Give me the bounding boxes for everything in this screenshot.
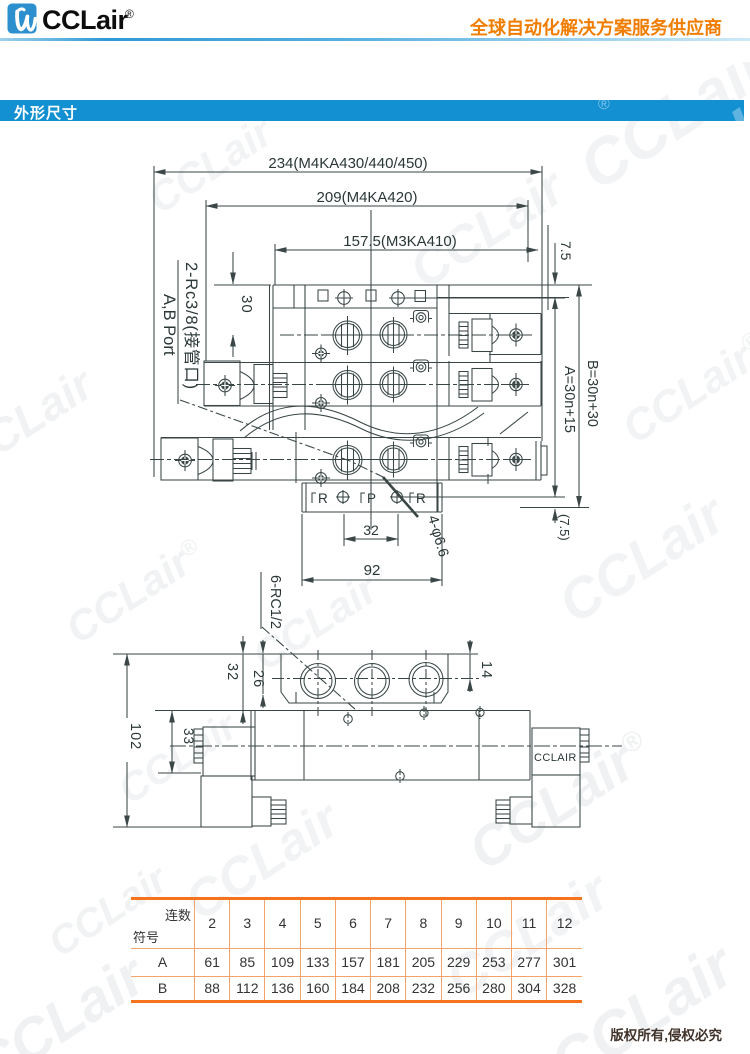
svg-text:CCLair®: CCLair® [614, 324, 750, 453]
svg-text:4-φ6.6: 4-φ6.6 [424, 514, 451, 559]
svg-text:92: 92 [364, 562, 381, 579]
svg-text:CCLair: CCLair [0, 356, 104, 483]
svg-text:26: 26 [250, 670, 266, 688]
svg-text:CCLair: CCLair [111, 703, 247, 813]
svg-text:30: 30 [238, 295, 255, 314]
svg-text:234(M4KA430/440/450): 234(M4KA430/440/450) [268, 155, 427, 172]
svg-text:157.5(M3KA410): 157.5(M3KA410) [343, 233, 456, 250]
svg-text:CCLair®: CCLair® [57, 529, 212, 653]
svg-text:14: 14 [478, 661, 494, 679]
svg-text:CCLair: CCLair [400, 157, 577, 300]
svg-text:33: 33 [181, 728, 196, 745]
svg-text:2-Rc3/8(接管口): 2-Rc3/8(接管口) [182, 262, 201, 390]
svg-text:7.5: 7.5 [558, 241, 574, 261]
svg-text:P: P [367, 491, 376, 506]
svg-text:209(M4KA420): 209(M4KA420) [317, 189, 418, 206]
svg-text:R: R [416, 491, 426, 506]
svg-text:32: 32 [363, 522, 379, 538]
svg-text:CCLair®: CCLair® [457, 718, 663, 882]
svg-text:CCLAIR: CCLAIR [534, 752, 577, 764]
svg-text:(7.5): (7.5) [557, 514, 572, 541]
svg-text:32: 32 [224, 663, 240, 681]
svg-text:CCLair: CCLair [139, 107, 282, 223]
svg-text:R: R [318, 491, 328, 506]
svg-text:102: 102 [127, 723, 143, 750]
svg-text:A=30n+15: A=30n+15 [561, 366, 577, 433]
svg-text:A,B Port: A,B Port [160, 294, 178, 356]
svg-text:6-RC1/2: 6-RC1/2 [267, 575, 283, 629]
svg-text:CCLair: CCLair [547, 480, 738, 635]
svg-text:B=30n+30: B=30n+30 [584, 360, 600, 427]
